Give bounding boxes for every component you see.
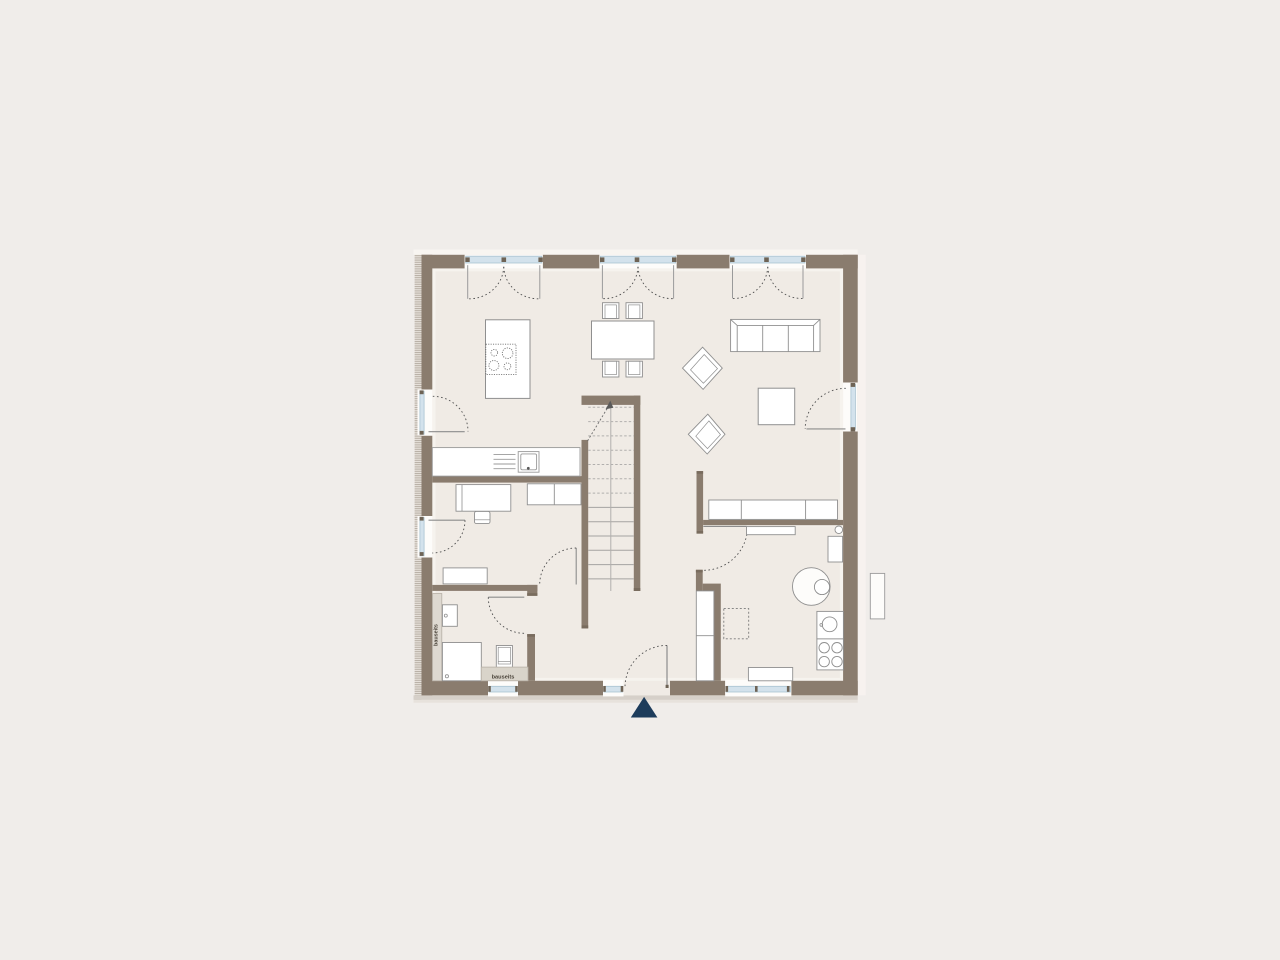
svg-text:bauseits: bauseits [492, 674, 515, 680]
svg-text:bauseits: bauseits [433, 624, 439, 646]
